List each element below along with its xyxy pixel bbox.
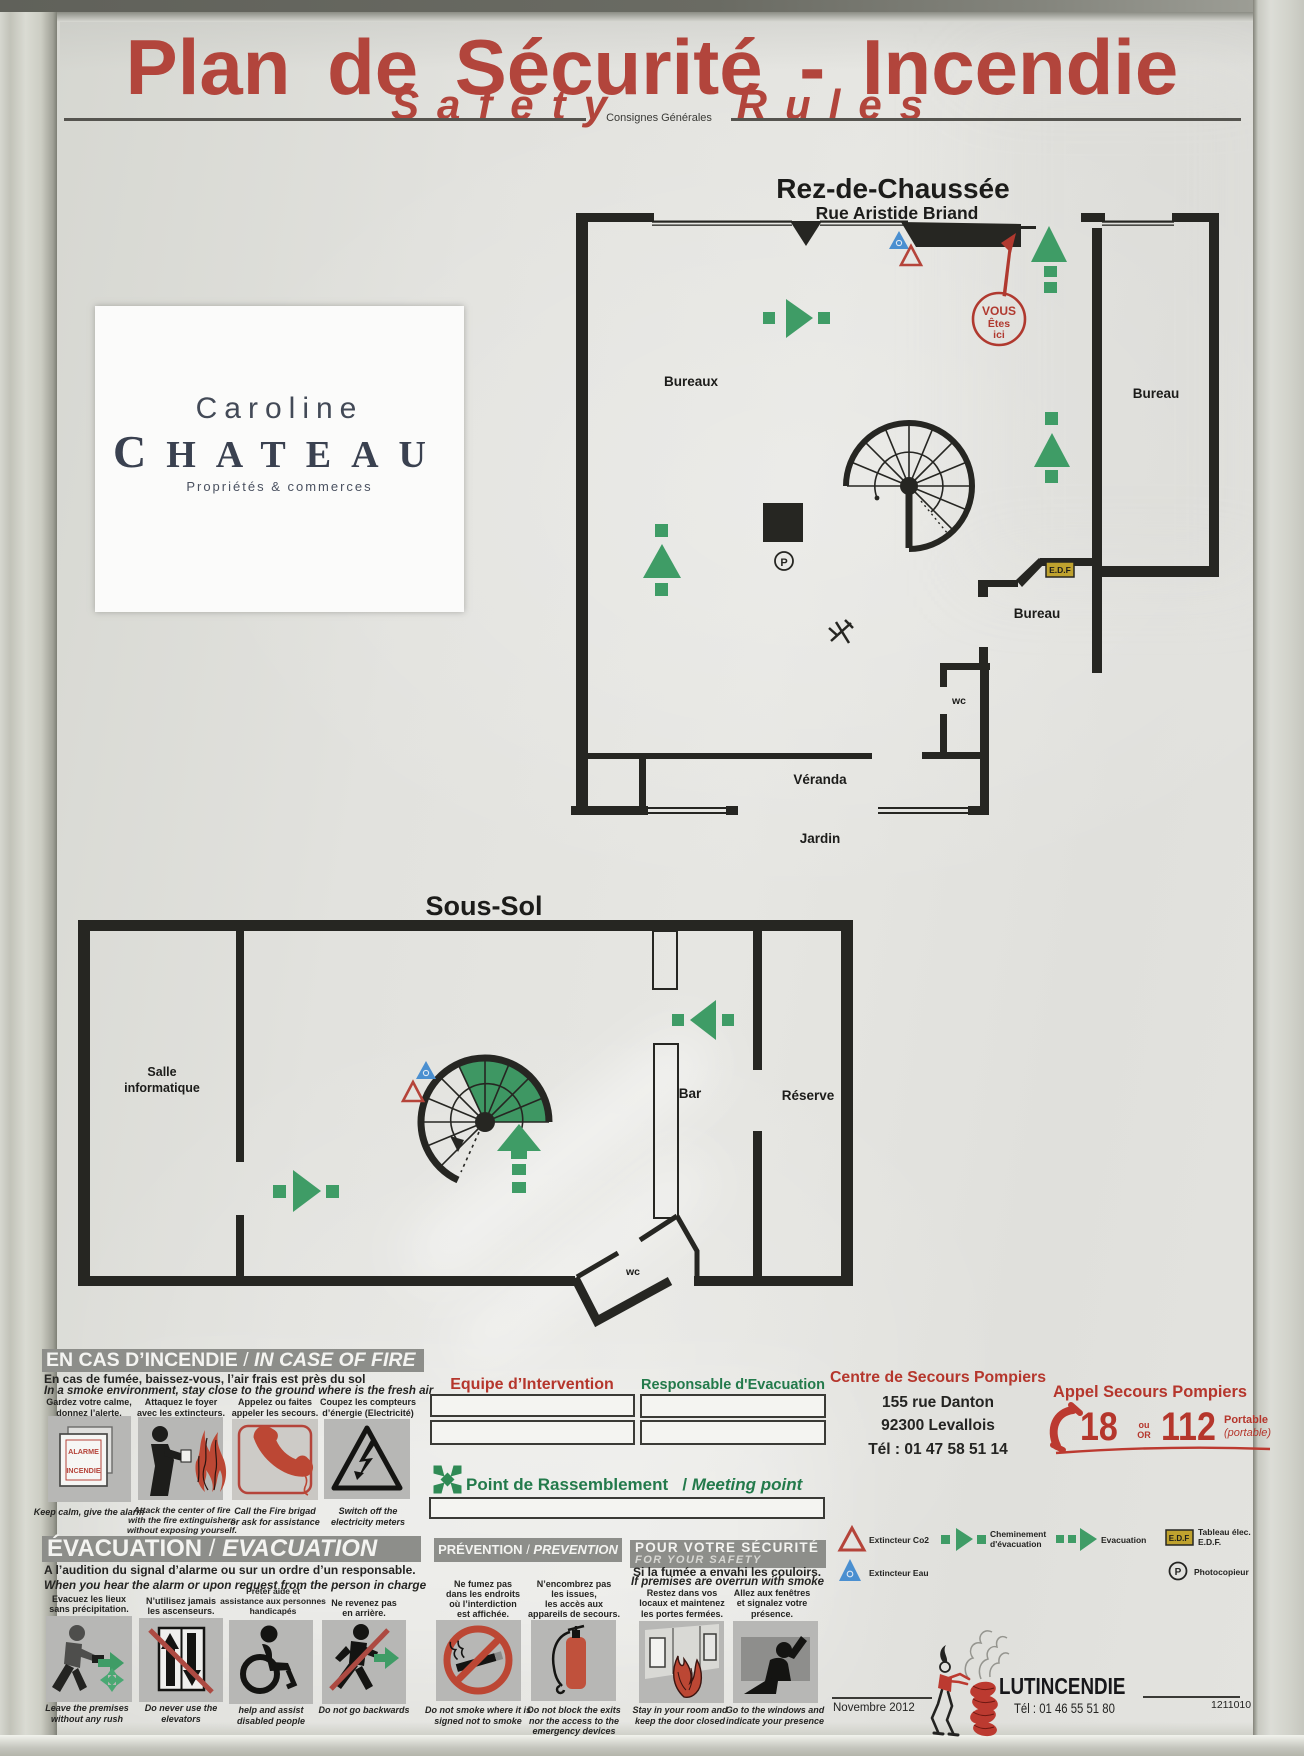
svg-text:Rue Aristide Briand: Rue Aristide Briand — [816, 203, 979, 223]
svg-text:Evacuation: Evacuation — [1101, 1535, 1146, 1545]
svg-text:Cheminement: Cheminement — [990, 1529, 1046, 1539]
svg-text:informatique: informatique — [124, 1081, 200, 1095]
svg-text:E.D.F.: E.D.F. — [1198, 1537, 1221, 1547]
svg-text:INCENDIE: INCENDIE — [66, 1466, 101, 1475]
svg-text:Bureau: Bureau — [1014, 606, 1061, 621]
svg-text:Bureau: Bureau — [1133, 386, 1180, 401]
svg-text:Réserve: Réserve — [782, 1088, 835, 1103]
svg-text:ici: ici — [993, 329, 1005, 341]
svg-text:Bureaux: Bureaux — [664, 374, 719, 389]
svg-text:E.D.F: E.D.F — [1049, 565, 1071, 575]
svg-text:P: P — [1175, 1567, 1182, 1578]
svg-text:Véranda: Véranda — [793, 772, 847, 787]
svg-text:wc: wc — [625, 1266, 640, 1278]
svg-text:Photocopieur: Photocopieur — [1194, 1567, 1249, 1577]
svg-text:Tableau élec.: Tableau élec. — [1198, 1527, 1251, 1537]
svg-text:Extincteur Co2: Extincteur Co2 — [869, 1535, 929, 1545]
svg-text:VOUS: VOUS — [982, 304, 1016, 318]
svg-text:Extincteur Eau: Extincteur Eau — [869, 1568, 929, 1578]
svg-text:d'évacuation: d'évacuation — [990, 1539, 1042, 1549]
svg-text:Jardin: Jardin — [800, 831, 841, 846]
svg-text:Sous-Sol: Sous-Sol — [425, 891, 542, 921]
svg-text:Rez-de-Chaussée: Rez-de-Chaussée — [776, 173, 1009, 204]
svg-text:E.D.F: E.D.F — [1169, 1534, 1190, 1543]
svg-text:Salle: Salle — [147, 1065, 176, 1079]
svg-text:wc: wc — [951, 695, 966, 707]
svg-text:ALARME: ALARME — [68, 1447, 99, 1456]
svg-text:P: P — [780, 557, 787, 569]
svg-text:Bar: Bar — [679, 1086, 702, 1101]
